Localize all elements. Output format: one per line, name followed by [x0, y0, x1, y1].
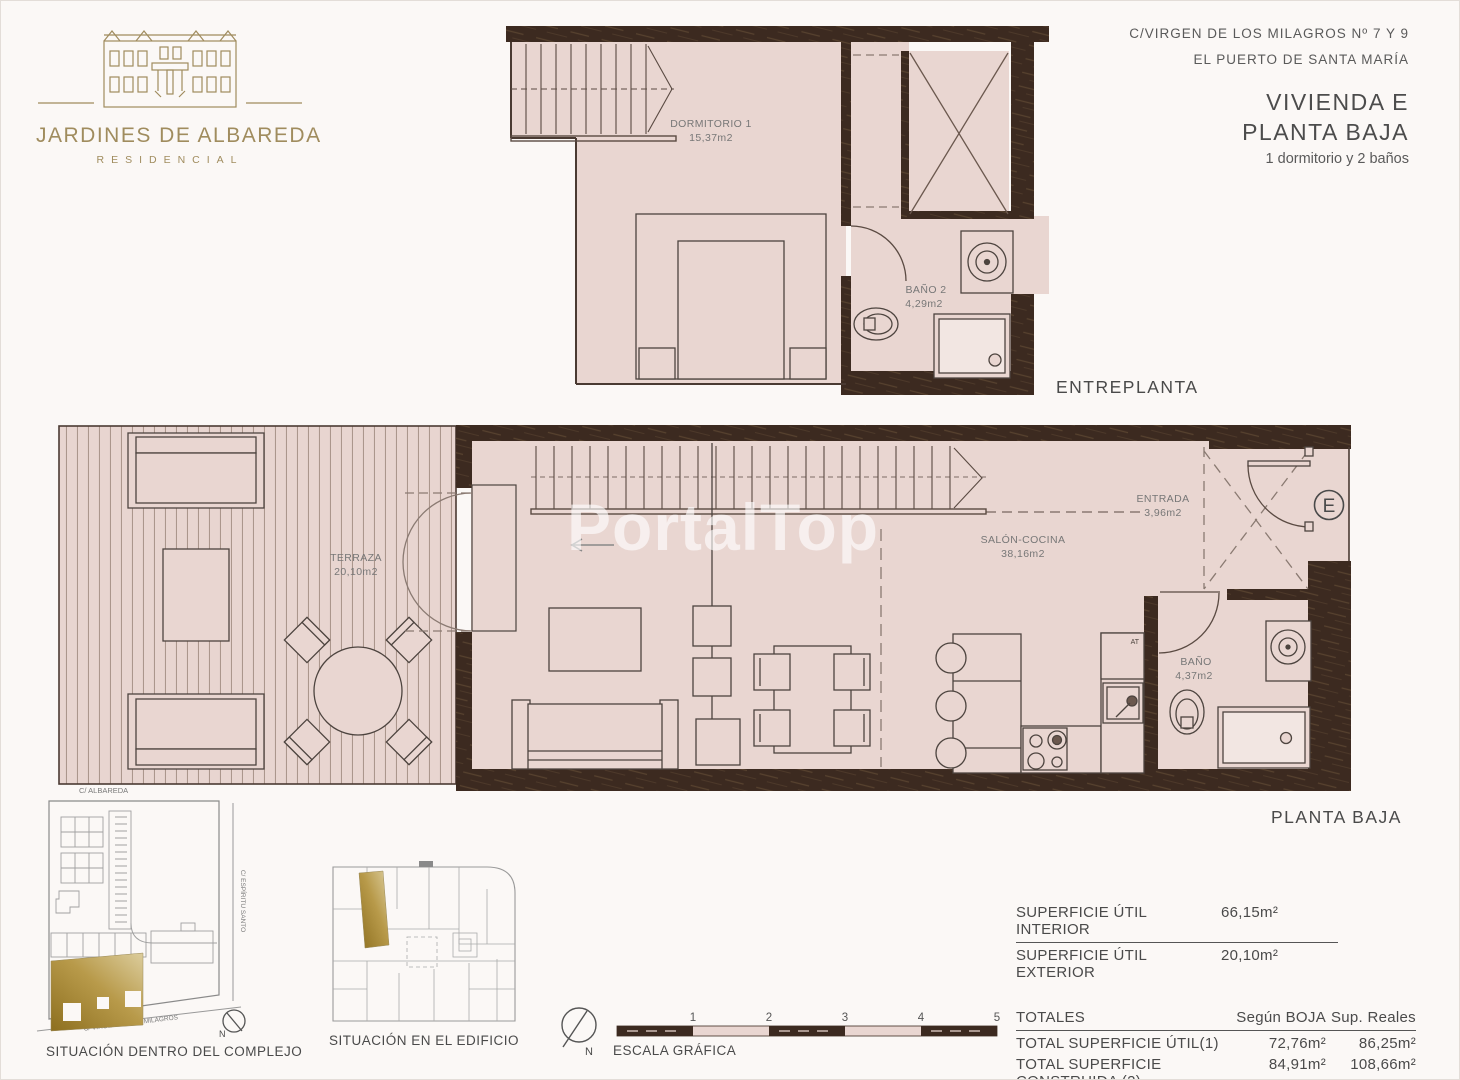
entreplanta-plan: DORMITORIO 1 15,37m2 BAÑO 2 4,29m2 [506, 26, 1056, 398]
brand-name: JARDINES DE ALBAREDA [36, 124, 304, 148]
table-row: SUPERFICIE ÚTIL EXTERIOR 20,10m² [1016, 943, 1338, 981]
at-label: AT [1131, 639, 1140, 646]
col-reales: Sup. Reales [1326, 1009, 1416, 1026]
scale-caption: ESCALA GRÁFICA [613, 1043, 736, 1058]
sofa-icon [528, 704, 662, 769]
scale-tick: 5 [994, 1012, 1000, 1024]
table-row: TOTAL SUPERFICIE CONSTRUIDA (2) 84,91m² … [1016, 1056, 1416, 1080]
totals-header-row: TOTALES Según BOJA Sup. Reales [1016, 1009, 1416, 1031]
col-boja: Según BOJA [1221, 1009, 1326, 1026]
round-table-icon [314, 647, 402, 735]
stool-icon [936, 738, 966, 768]
util-interior-value: 66,15m² [1221, 904, 1336, 938]
site-plan-building [319, 849, 534, 1029]
areas-table: SUPERFICIE ÚTIL INTERIOR 66,15m² SUPERFI… [1016, 904, 1416, 1080]
total-util-reales: 86,25m² [1326, 1035, 1416, 1052]
dormitorio1-label: DORMITORIO 1 [670, 118, 752, 130]
address-line-2: EL PUERTO DE SANTA MARÍA [1129, 47, 1409, 73]
brand-subtitle: RESIDENCIAL [36, 154, 304, 166]
bano-area: 4,37m2 [1175, 670, 1212, 682]
entrada-area: 3,96m2 [1144, 507, 1181, 519]
total-construida-boja: 84,91m² [1221, 1056, 1326, 1080]
terraza-label: TERRAZA [330, 552, 382, 564]
total-util-boja: 72,76m² [1221, 1035, 1326, 1052]
scale-ticks: 1 2 3 4 5 [690, 1012, 1000, 1024]
stool-icon [936, 691, 966, 721]
bano-label: BAÑO [1180, 655, 1211, 668]
site-plan-complex: C/ ALBAREDA C/ ESPÍRITU SANTO C/ VIRGEN … [31, 773, 256, 1041]
salon-area: 38,16m2 [1001, 548, 1045, 560]
salon-label: SALÓN-COCINA [981, 533, 1066, 546]
bano2-label: BAÑO 2 [906, 283, 947, 296]
terrace-table-icon [163, 549, 229, 641]
total-construida-reales: 108,66m² [1326, 1056, 1416, 1080]
scale-tick: 3 [842, 1012, 848, 1024]
planta-baja-plan: AT E TERRAZA 20,10m2 [56, 421, 1361, 793]
north-compass-icon [562, 1008, 596, 1042]
sheet-header: C/VIRGEN DE LOS MILAGROS Nº 7 Y 9 EL PUE… [1129, 21, 1409, 167]
address-line-1: C/VIRGEN DE LOS MILAGROS Nº 7 Y 9 [1129, 21, 1409, 47]
entrada-label: ENTRADA [1137, 493, 1190, 505]
table-row: SUPERFICIE ÚTIL INTERIOR 66,15m² [1016, 904, 1338, 943]
bano2-area: 4,29m2 [905, 298, 942, 310]
site-building-caption: SITUACIÓN EN EL EDIFICIO [329, 1033, 519, 1048]
bed [636, 214, 826, 379]
street-espiritu-label: C/ ESPÍRITU SANTO [239, 870, 248, 932]
floor-title: PLANTA BAJA [1129, 117, 1409, 147]
site-complex-caption: SITUACIÓN DENTRO DEL COMPLEJO [46, 1044, 302, 1059]
dormitorio1-area: 15,37m2 [689, 132, 733, 144]
street-albareda-label: C/ ALBAREDA [79, 786, 128, 795]
util-exterior-label: SUPERFICIE ÚTIL EXTERIOR [1016, 947, 1221, 981]
util-exterior-value: 20,10m² [1221, 947, 1336, 981]
north-label: N [219, 1029, 226, 1039]
total-construida-label: TOTAL SUPERFICIE CONSTRUIDA (2) [1016, 1056, 1221, 1080]
terraza-area: 20,10m2 [334, 566, 378, 578]
north-label: N [585, 1046, 593, 1058]
rooms-summary: 1 dormitorio y 2 baños [1129, 151, 1409, 167]
unit-title: VIVIENDA E [1129, 87, 1409, 117]
total-util-label: TOTAL SUPERFICIE ÚTIL(1) [1016, 1035, 1221, 1052]
building-entry-tick [419, 861, 433, 867]
north-compass-icon: N [219, 1010, 245, 1039]
entreplanta-title: ENTREPLANTA [1056, 377, 1199, 398]
totals-label: TOTALES [1016, 1009, 1221, 1026]
highlighted-unit [359, 871, 389, 948]
planta-baja-title: PLANTA BAJA [1271, 807, 1402, 828]
table-row: TOTAL SUPERFICIE ÚTIL(1) 72,76m² 86,25m² [1016, 1035, 1416, 1052]
floorplan-sheet: JARDINES DE ALBAREDA RESIDENCIAL C/VIRGE… [0, 0, 1460, 1080]
scale-tick: 1 [690, 1012, 696, 1024]
brand-building-icon [36, 15, 304, 115]
scale-tick: 2 [766, 1012, 772, 1024]
scale-tick: 4 [918, 1012, 925, 1024]
brand-logo: JARDINES DE ALBAREDA RESIDENCIAL [36, 15, 304, 166]
complex-buildings [51, 811, 217, 963]
stool-icon [936, 643, 966, 673]
util-interior-label: SUPERFICIE ÚTIL INTERIOR [1016, 904, 1221, 938]
scale-compass: N [549, 1001, 613, 1065]
entrance-mark: E [1323, 496, 1336, 517]
coffee-table-icon [549, 608, 641, 671]
